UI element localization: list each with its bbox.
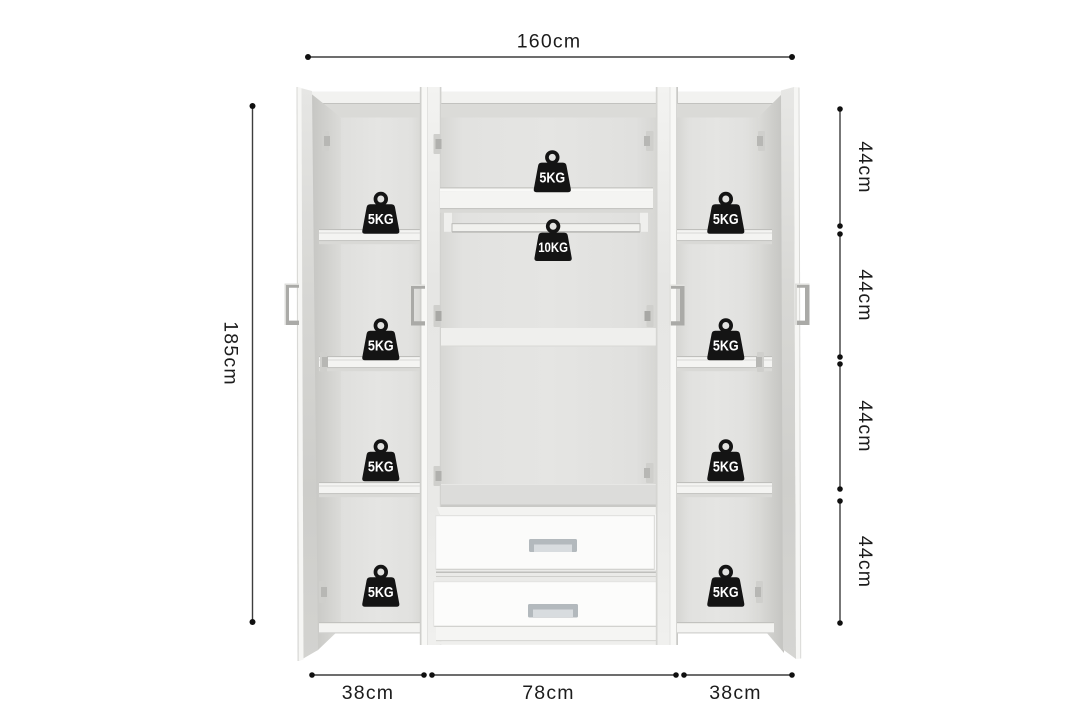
svg-text:185cm: 185cm	[219, 321, 241, 386]
svg-text:5KG: 5KG	[368, 459, 394, 476]
svg-text:44cm: 44cm	[854, 269, 876, 321]
svg-text:5KG: 5KG	[713, 338, 739, 355]
svg-text:5KG: 5KG	[713, 584, 739, 601]
svg-text:10KG: 10KG	[538, 240, 568, 255]
svg-text:44cm: 44cm	[854, 400, 876, 452]
svg-text:5KG: 5KG	[713, 459, 739, 476]
svg-text:78cm: 78cm	[522, 682, 574, 704]
svg-text:5KG: 5KG	[368, 584, 394, 601]
svg-text:160cm: 160cm	[517, 31, 582, 53]
svg-text:5KG: 5KG	[368, 211, 394, 228]
svg-text:5KG: 5KG	[713, 211, 739, 228]
svg-text:38cm: 38cm	[709, 682, 761, 704]
svg-text:44cm: 44cm	[854, 141, 876, 193]
svg-text:38cm: 38cm	[342, 682, 394, 704]
svg-text:44cm: 44cm	[854, 536, 876, 588]
svg-text:5KG: 5KG	[368, 338, 394, 355]
svg-text:5KG: 5KG	[539, 169, 565, 186]
